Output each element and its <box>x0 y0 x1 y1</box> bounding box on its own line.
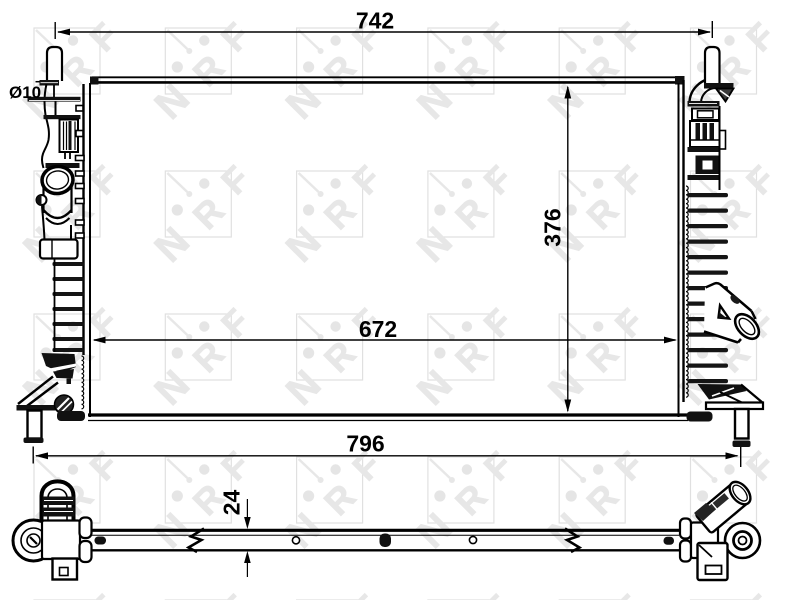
svg-text:376: 376 <box>540 208 566 246</box>
svg-text:672: 672 <box>359 316 397 342</box>
svg-text:796: 796 <box>346 431 384 457</box>
svg-text:24: 24 <box>219 490 245 516</box>
svg-text:742: 742 <box>356 8 394 34</box>
svg-text:Ø10: Ø10 <box>9 83 41 102</box>
